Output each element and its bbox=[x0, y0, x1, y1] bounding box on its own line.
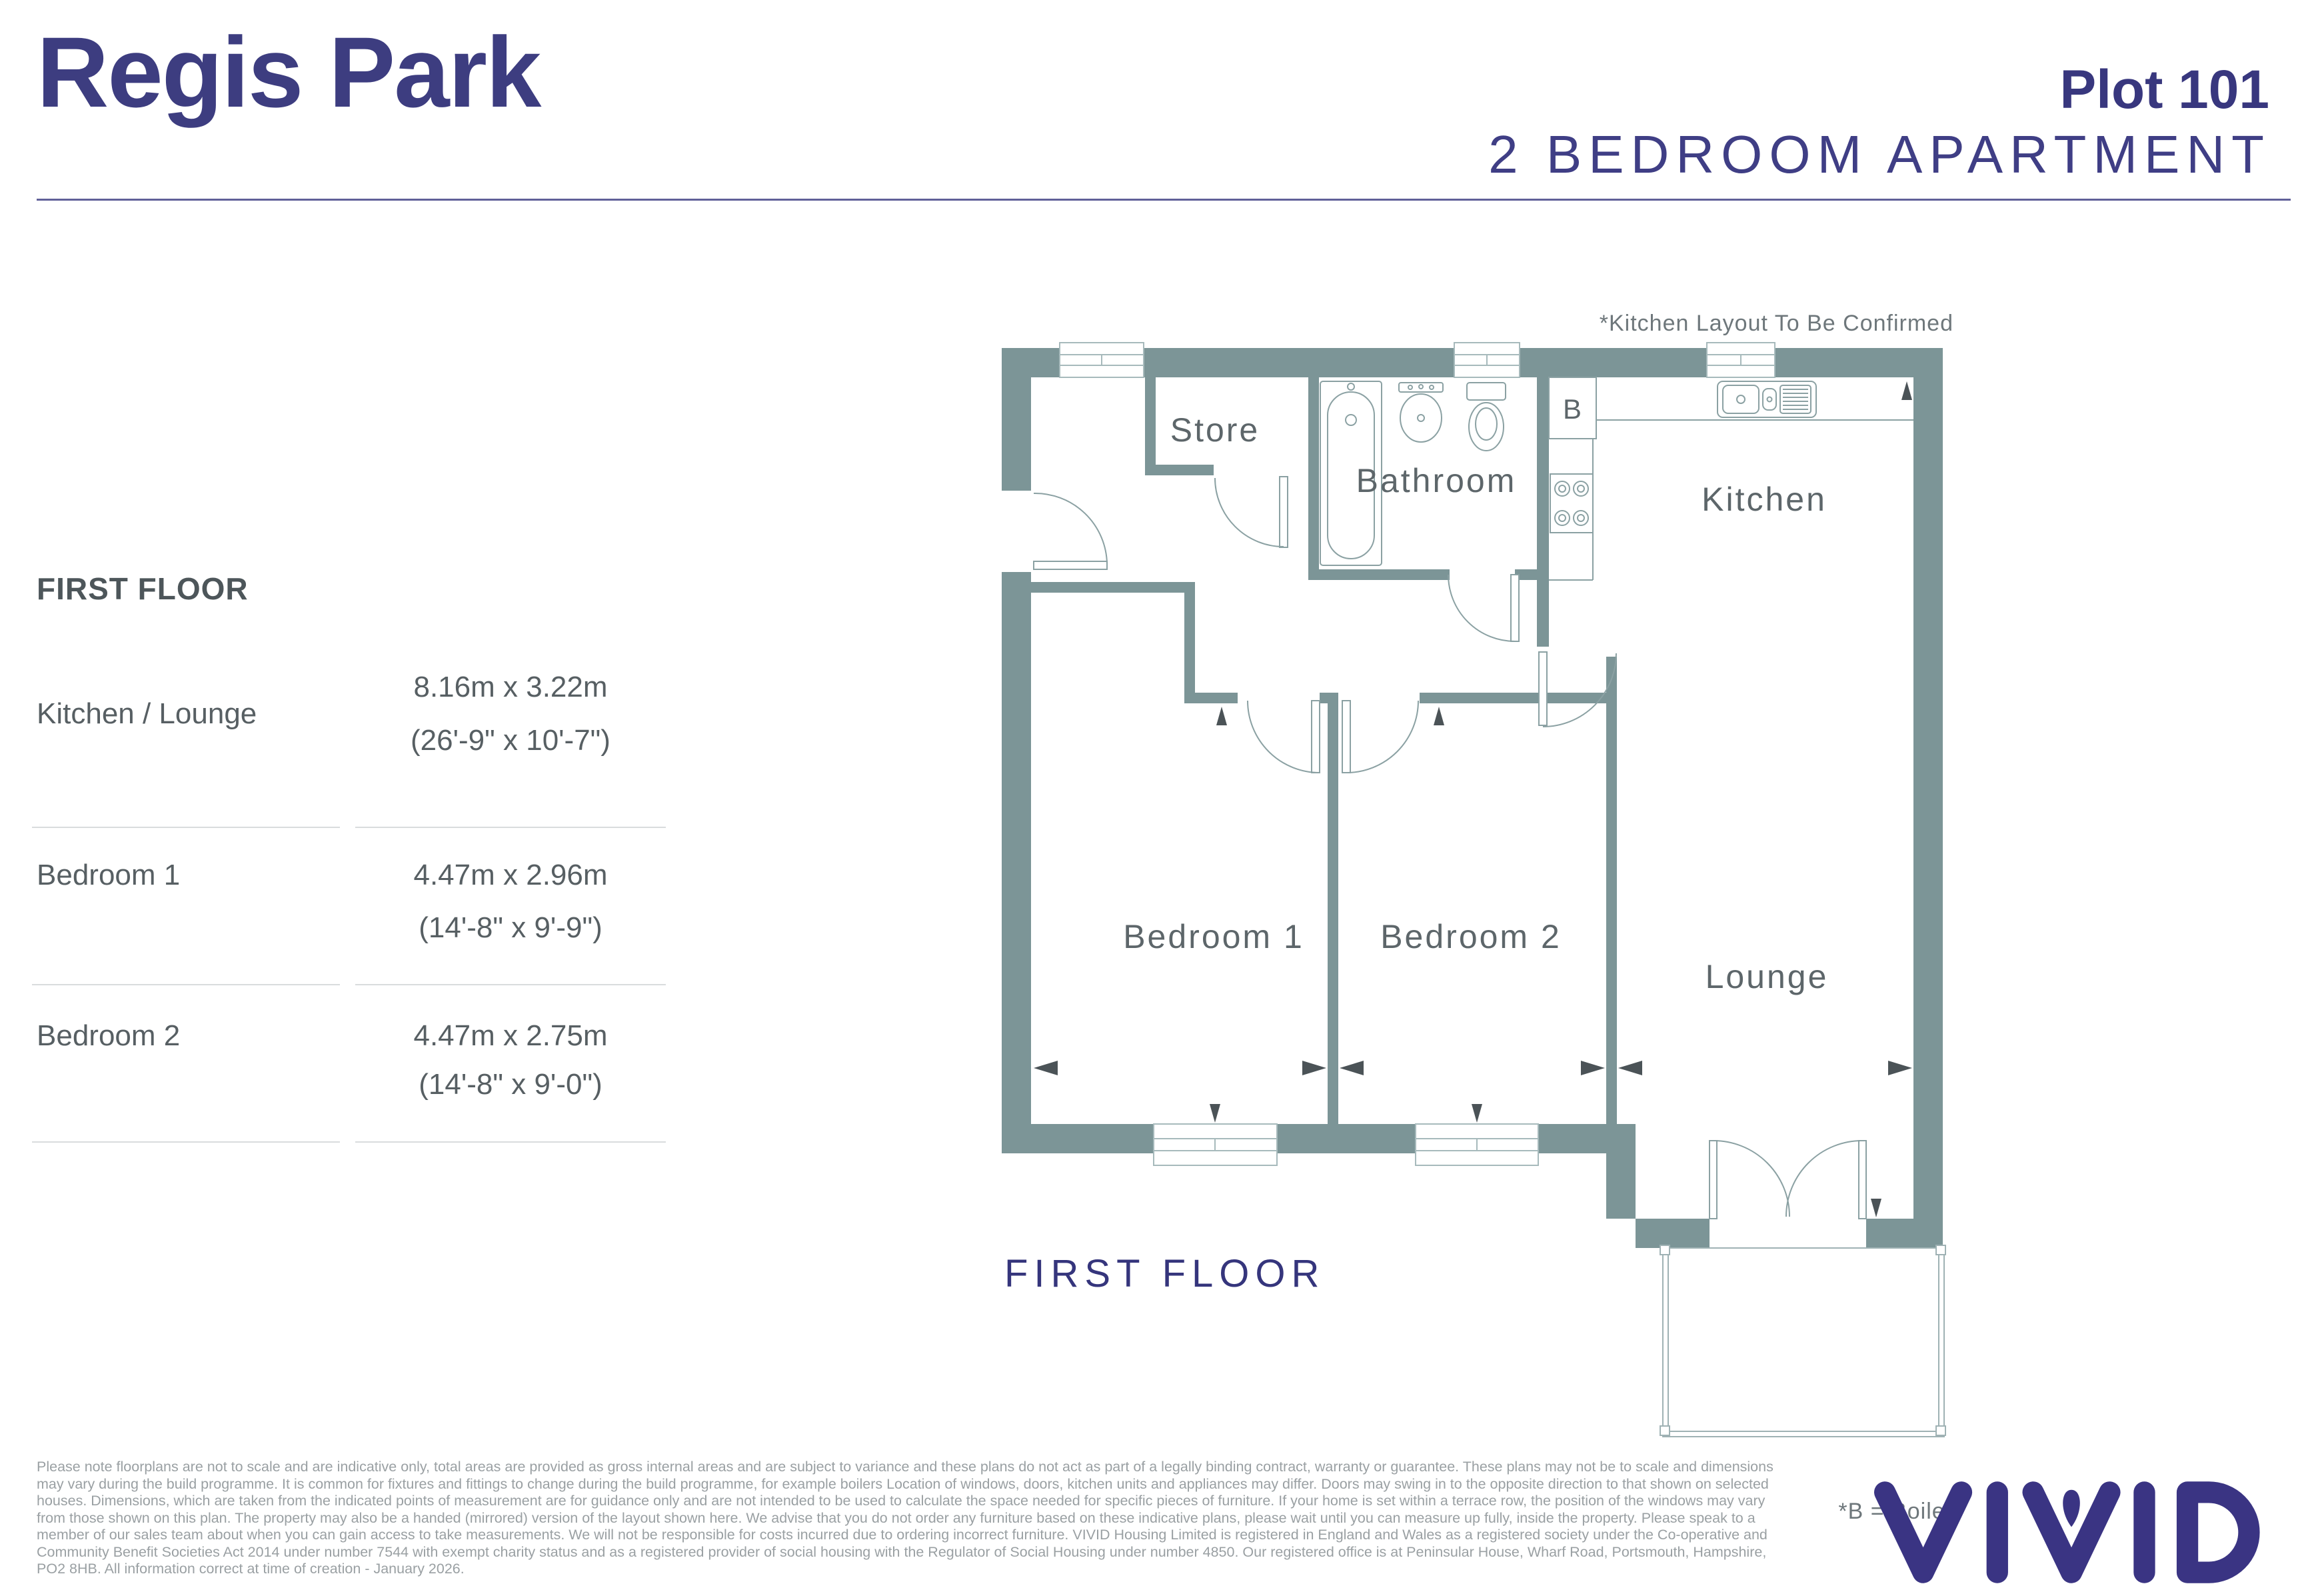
table-row-metric: 4.47m x 2.75m bbox=[355, 1019, 666, 1053]
basin bbox=[1399, 383, 1443, 442]
window bbox=[1060, 343, 1144, 377]
plan-floor-label: FIRST FLOOR bbox=[1004, 1252, 1325, 1295]
table-title: FIRST FLOOR bbox=[37, 571, 249, 607]
measure-arrow-left-icon bbox=[1618, 1061, 1642, 1075]
logo-droplet-icon bbox=[2063, 1490, 2080, 1527]
hob bbox=[1550, 474, 1593, 533]
table-row-room: Bedroom 1 bbox=[37, 859, 180, 892]
logo-letter-d bbox=[2187, 1492, 2249, 1572]
floor-plan: *Kitchen Layout To Be Confirmed bbox=[970, 287, 1956, 1540]
french-doors bbox=[1710, 1141, 1866, 1219]
table-divider bbox=[32, 827, 340, 828]
table-divider bbox=[355, 827, 666, 828]
toilet bbox=[1467, 383, 1506, 451]
measure-arrow-up-icon bbox=[1901, 381, 1912, 400]
table-row-room: Bedroom 2 bbox=[37, 1019, 180, 1053]
measure-arrow-down-icon bbox=[1210, 1104, 1220, 1123]
kitchen-sink bbox=[1718, 381, 1816, 417]
disclaimer-text: Please note floorplans are not to scale … bbox=[37, 1459, 1789, 1578]
measure-arrow-down-icon bbox=[1871, 1199, 1881, 1217]
room-label-kitchen: Kitchen bbox=[1702, 481, 1827, 518]
development-title: Regis Park bbox=[37, 15, 540, 130]
table-row-imperial: (26'-9" x 10'-7") bbox=[355, 724, 666, 757]
measure-arrow-right-icon bbox=[1302, 1061, 1326, 1075]
measure-arrow-down-icon bbox=[1472, 1104, 1482, 1123]
window bbox=[1454, 343, 1520, 377]
table-row-metric: 8.16m x 3.22m bbox=[355, 671, 666, 704]
bathroom-door bbox=[1448, 575, 1519, 641]
table-divider bbox=[32, 984, 340, 985]
table-row-imperial: (14'-8" x 9'-9") bbox=[355, 911, 666, 945]
measure-arrow-left-icon bbox=[1034, 1061, 1058, 1075]
floorplan-sheet: Regis Park Plot 101 2 BEDROOM APARTMENT … bbox=[0, 0, 2324, 1590]
bedroom1-door bbox=[1248, 701, 1320, 773]
table-row-imperial: (14'-8" x 9'-0") bbox=[355, 1068, 666, 1101]
measure-arrow-up-icon bbox=[1216, 707, 1227, 725]
kitchen-note: *Kitchen Layout To Be Confirmed bbox=[1600, 311, 1953, 336]
plot-number: Plot 101 bbox=[1470, 59, 2269, 121]
vivid-logo bbox=[1874, 1481, 2281, 1583]
table-divider bbox=[355, 1141, 666, 1143]
measure-arrow-left-icon bbox=[1340, 1061, 1364, 1075]
table-divider bbox=[355, 984, 666, 985]
property-type: 2 BEDROOM APARTMENT bbox=[1271, 124, 2271, 185]
table-row-room: Kitchen / Lounge bbox=[37, 697, 257, 731]
room-label-bedroom1: Bedroom 1 bbox=[1123, 918, 1304, 955]
kitchen-door bbox=[1539, 652, 1616, 727]
window bbox=[1707, 343, 1775, 377]
room-label-lounge: Lounge bbox=[1706, 958, 1829, 995]
store-door bbox=[1215, 477, 1288, 547]
measure-arrow-right-icon bbox=[1888, 1061, 1912, 1075]
balcony bbox=[1660, 1245, 1945, 1437]
logo-letter-v bbox=[1885, 1492, 1961, 1572]
measure-arrow-right-icon bbox=[1581, 1061, 1605, 1075]
entrance-door bbox=[1034, 493, 1107, 569]
door-swing bbox=[1034, 493, 1107, 564]
table-divider bbox=[32, 1141, 340, 1143]
header-divider bbox=[37, 199, 2291, 201]
measure-arrow-up-icon bbox=[1434, 707, 1444, 725]
room-label-bathroom: Bathroom bbox=[1356, 462, 1517, 499]
boiler-symbol: B bbox=[1563, 393, 1582, 425]
room-label-bedroom2: Bedroom 2 bbox=[1380, 918, 1562, 955]
window bbox=[1154, 1124, 1277, 1165]
bedroom2-door bbox=[1342, 701, 1418, 773]
window bbox=[1416, 1124, 1538, 1165]
table-row-metric: 4.47m x 2.96m bbox=[355, 859, 666, 892]
room-label-store: Store bbox=[1170, 411, 1260, 449]
